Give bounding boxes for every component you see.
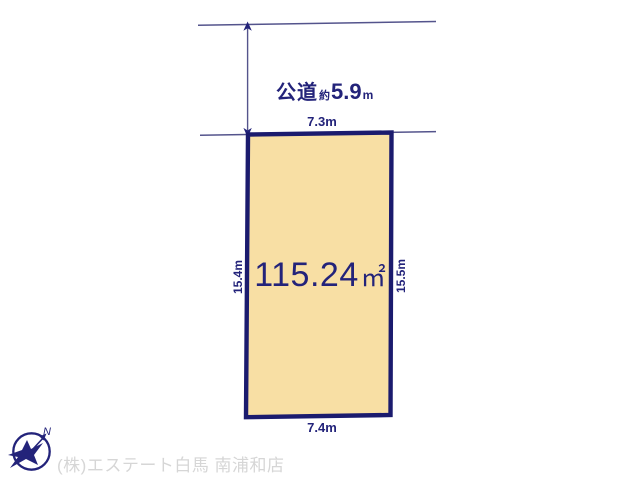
road-approx-label: 約: [319, 87, 330, 103]
dimension-bottom: 7.4m: [302, 420, 342, 435]
road-top-edge-line: [198, 22, 436, 26]
compass-north-label: N: [43, 426, 51, 438]
road-width-unit: m: [363, 88, 374, 102]
dimension-left: 15.4m: [231, 260, 245, 294]
road-width-value: 5.9: [331, 79, 362, 105]
parcel-area-value: 115.24: [254, 256, 358, 295]
road-width-annotation: 公道 約 5.9 m: [276, 76, 373, 105]
company-watermark: (株)エステート白馬 南浦和店: [57, 451, 285, 476]
dimension-top: 7.3m: [302, 114, 342, 129]
compass-north-icon: N: [8, 426, 51, 470]
road-name-label: 公道: [276, 76, 318, 105]
diagram-shapes: N: [0, 0, 640, 480]
dimension-right: 15.5m: [394, 259, 408, 293]
parcel-area-unit: ㎡: [361, 258, 386, 294]
land-plot-diagram: N 公道 約 5.9 m 7.3m 7.4m 15.4m 15.5m 115.2…: [0, 0, 640, 480]
parcel-area-label: 115.24 ㎡: [254, 256, 385, 295]
